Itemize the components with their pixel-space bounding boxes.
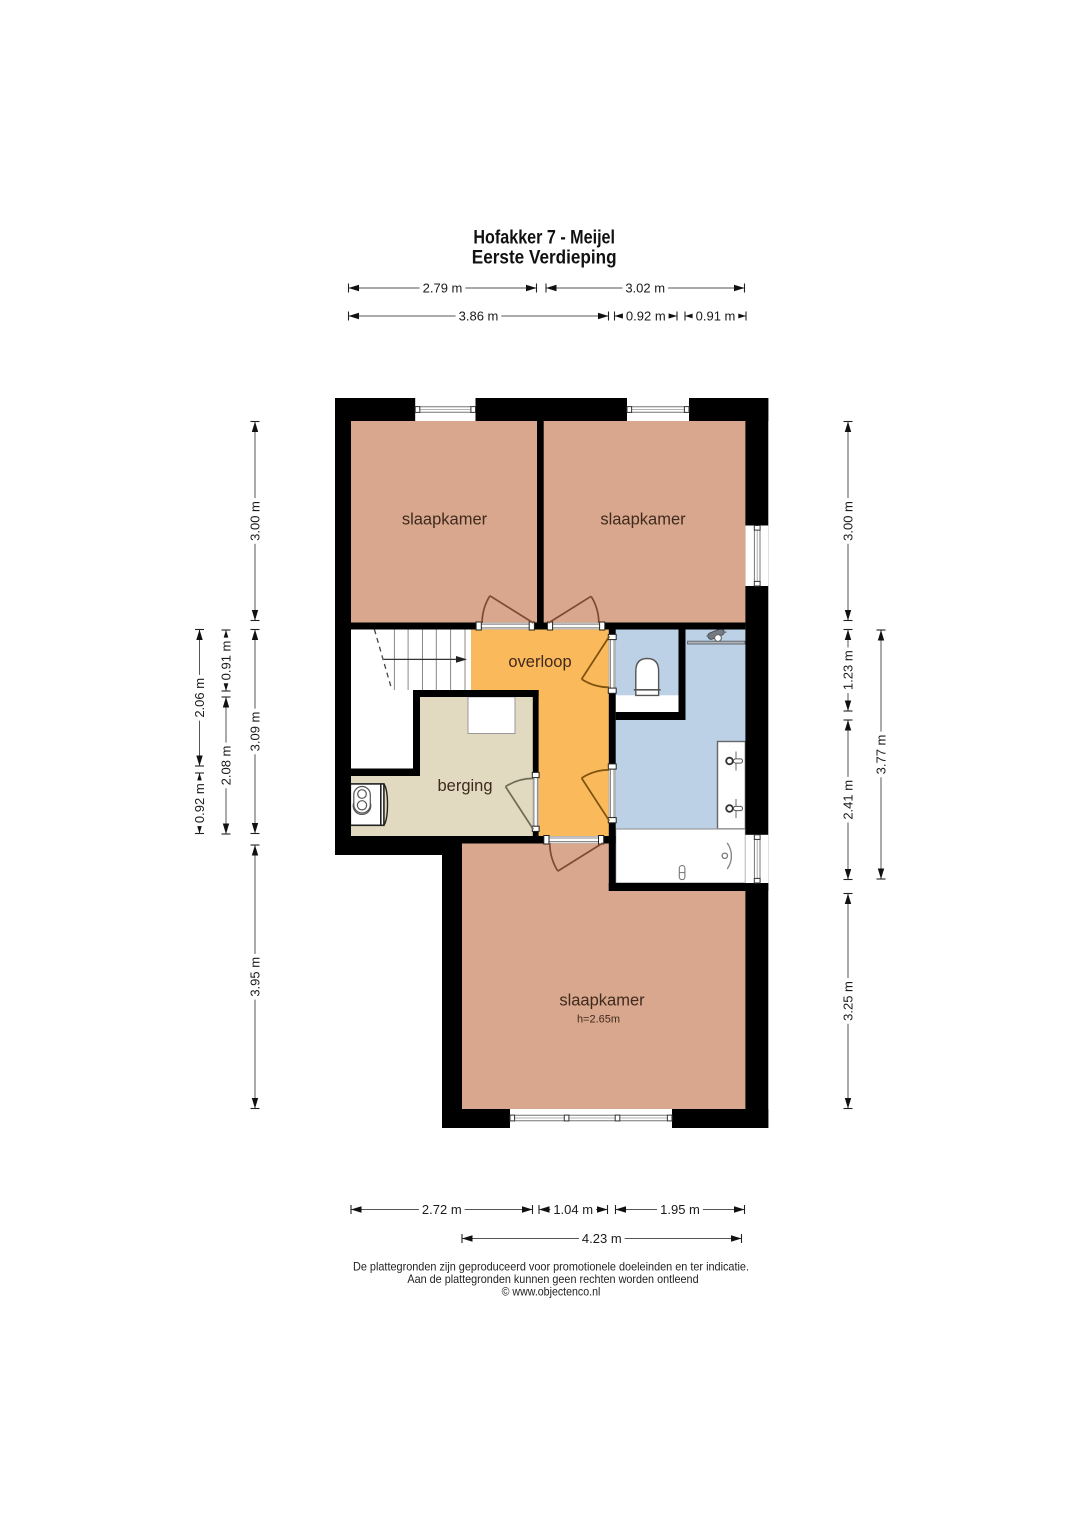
svg-text:2.72 m: 2.72 m <box>422 1202 462 1217</box>
svg-text:overloop: overloop <box>508 653 571 671</box>
svg-text:2.79 m: 2.79 m <box>423 281 463 296</box>
svg-text:3.02 m: 3.02 m <box>625 281 665 296</box>
svg-text:slaapkamer: slaapkamer <box>559 992 645 1010</box>
svg-text:2.41 m: 2.41 m <box>841 780 856 820</box>
svg-text:0.92 m: 0.92 m <box>626 309 666 324</box>
svg-text:3.25 m: 3.25 m <box>841 981 856 1021</box>
svg-text:4.23 m: 4.23 m <box>582 1231 622 1246</box>
svg-text:0.92 m: 0.92 m <box>192 783 207 823</box>
svg-text:© www.objectenco.nl: © www.objectenco.nl <box>502 1284 601 1298</box>
svg-text:1.95 m: 1.95 m <box>660 1202 700 1217</box>
svg-text:3.00 m: 3.00 m <box>841 501 856 541</box>
svg-text:0.91 m: 0.91 m <box>696 309 736 324</box>
svg-text:slaapkamer: slaapkamer <box>402 511 488 529</box>
svg-text:slaapkamer: slaapkamer <box>600 511 686 529</box>
svg-text:2.06 m: 2.06 m <box>192 678 207 718</box>
svg-text:2.08 m: 2.08 m <box>219 746 234 786</box>
svg-text:3.95 m: 3.95 m <box>248 957 263 997</box>
svg-text:Eerste Verdieping: Eerste Verdieping <box>472 247 617 268</box>
svg-text:1.23 m: 1.23 m <box>841 650 856 690</box>
svg-text:berging: berging <box>437 777 492 795</box>
svg-text:3.00 m: 3.00 m <box>248 501 263 541</box>
svg-text:3.77 m: 3.77 m <box>874 735 889 775</box>
svg-text:Hofakker 7 - Meijel: Hofakker 7 - Meijel <box>473 227 615 248</box>
svg-text:0.91 m: 0.91 m <box>219 641 234 681</box>
svg-text:3.86 m: 3.86 m <box>459 309 499 324</box>
svg-text:h=2.65m: h=2.65m <box>577 1014 620 1026</box>
svg-text:1.04 m: 1.04 m <box>553 1202 593 1217</box>
svg-text:3.09 m: 3.09 m <box>248 712 263 752</box>
